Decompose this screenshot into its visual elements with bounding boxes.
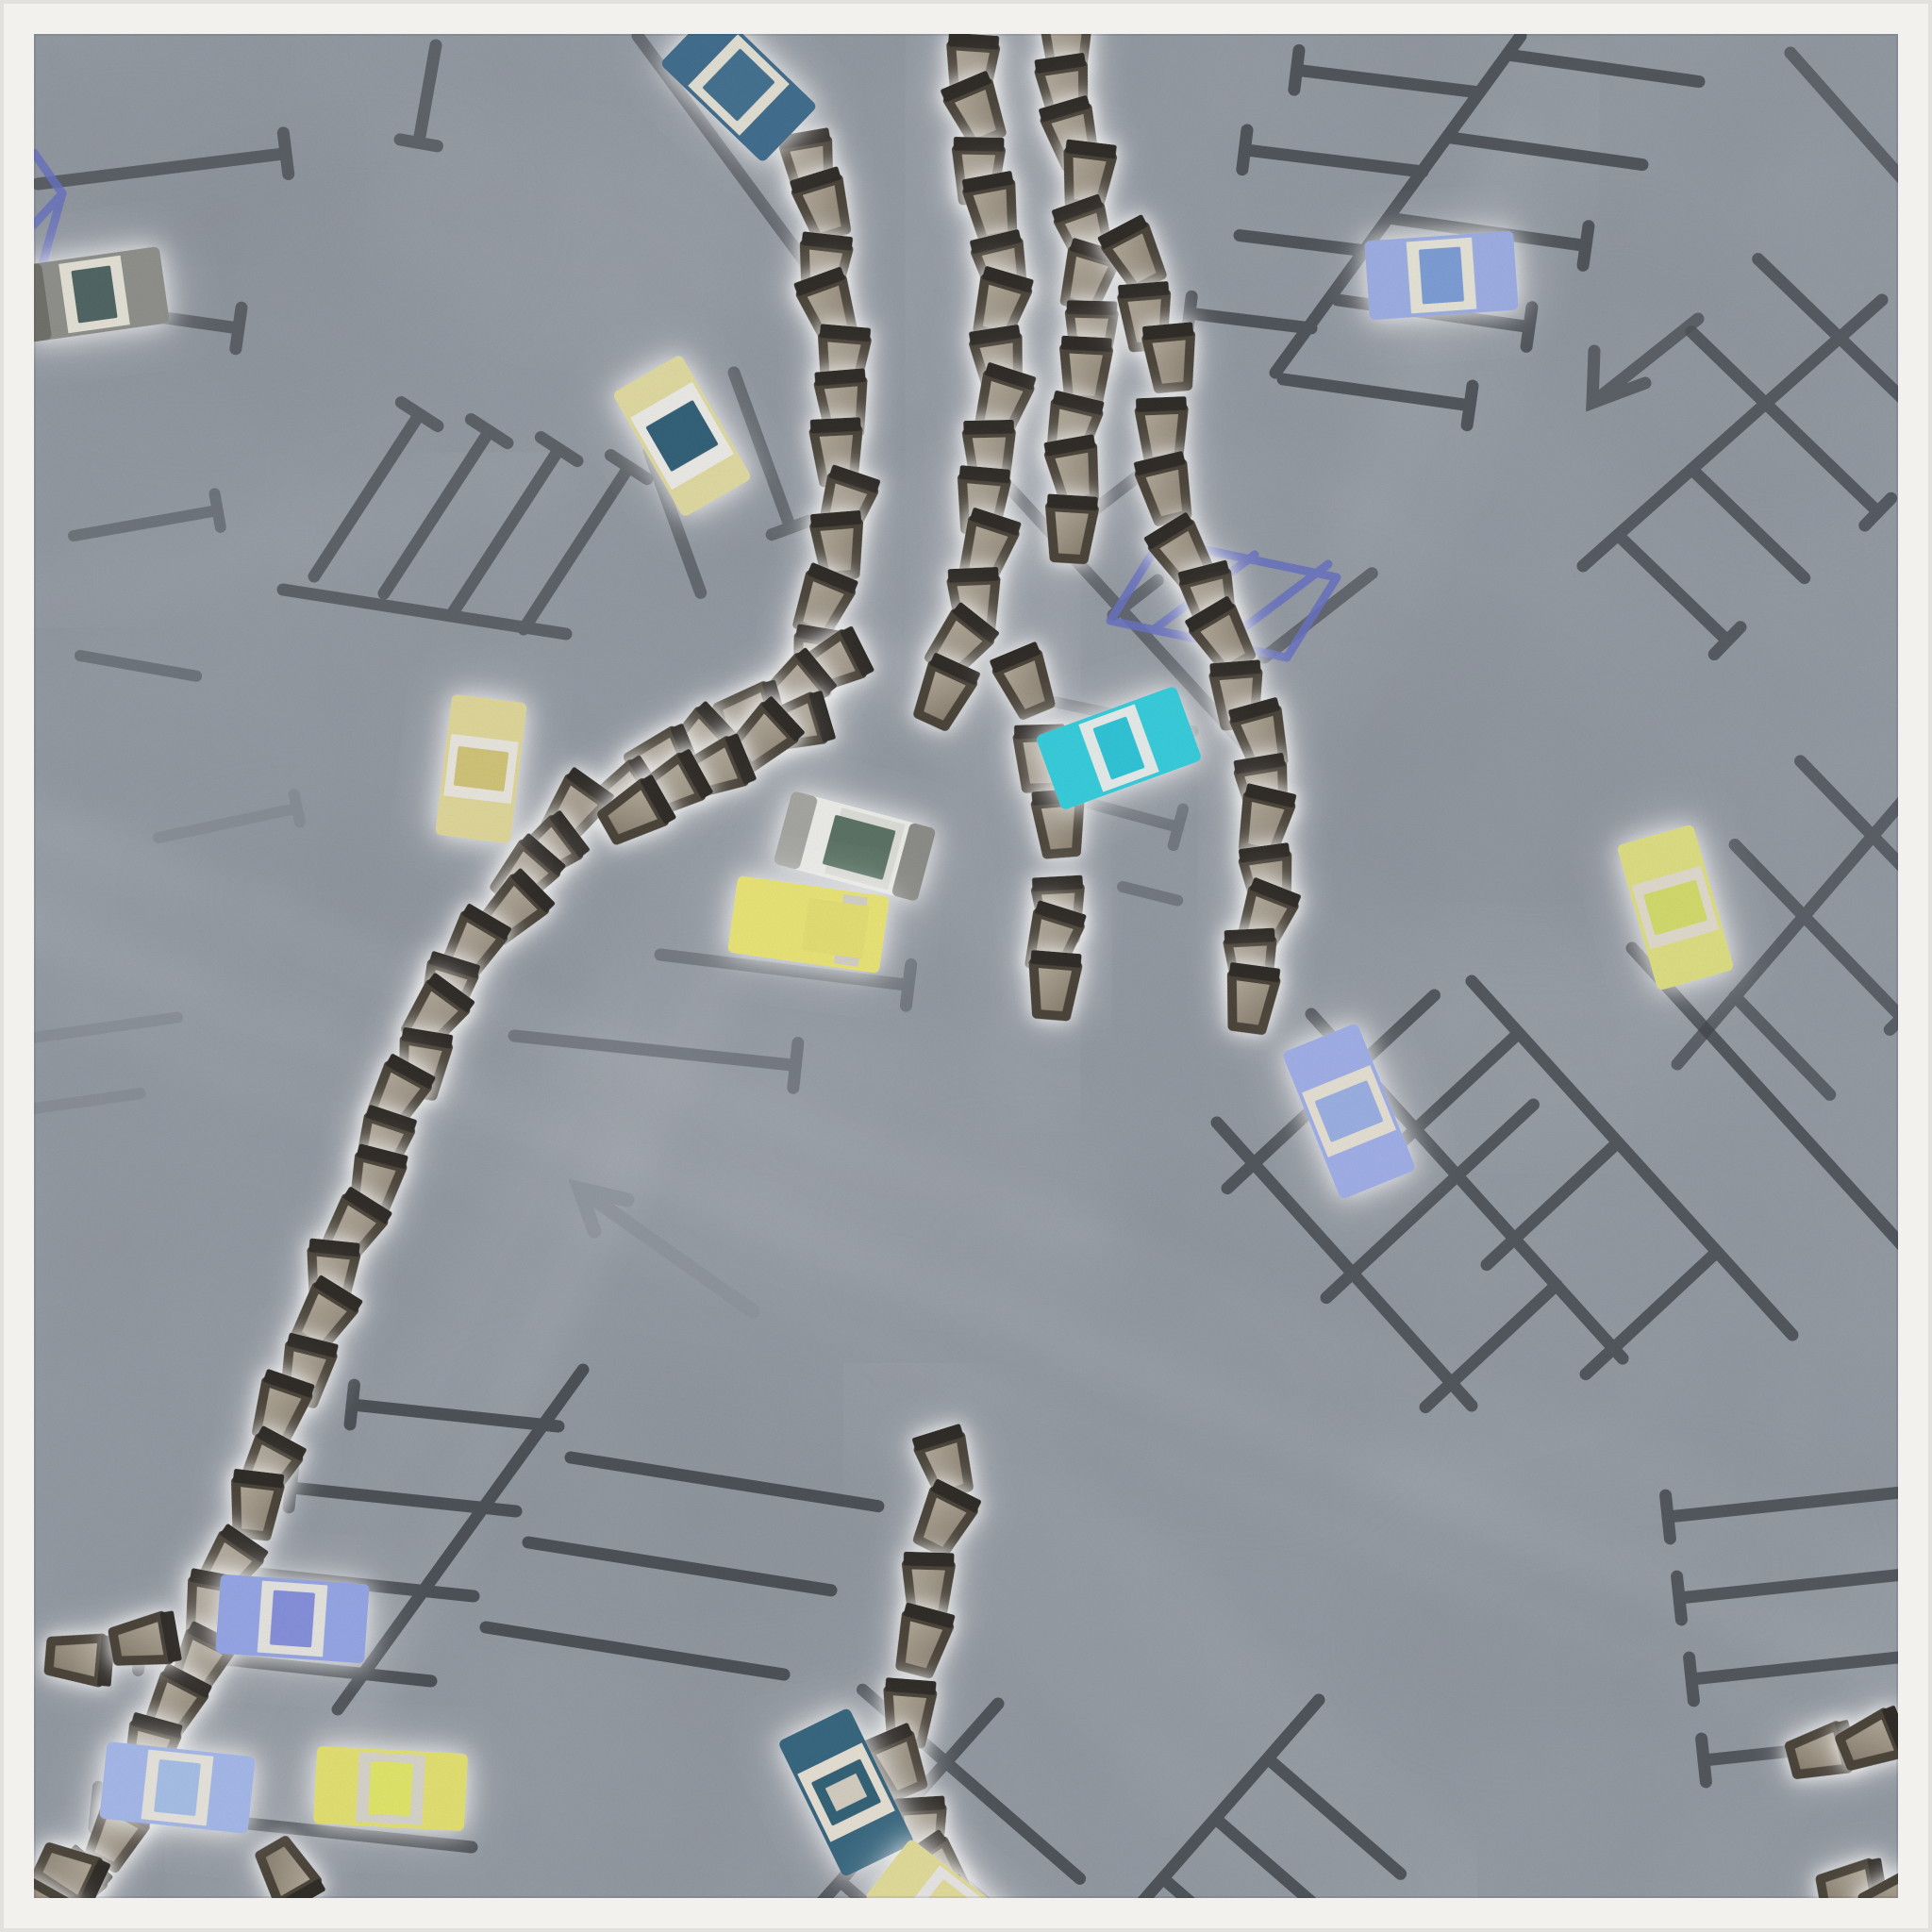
map-area bbox=[0, 0, 1932, 1932]
parking-lot-illustration bbox=[0, 0, 1932, 1932]
aerial-parking-lot-canvas bbox=[0, 0, 1932, 1932]
grain-texture-light bbox=[0, 0, 1932, 1932]
